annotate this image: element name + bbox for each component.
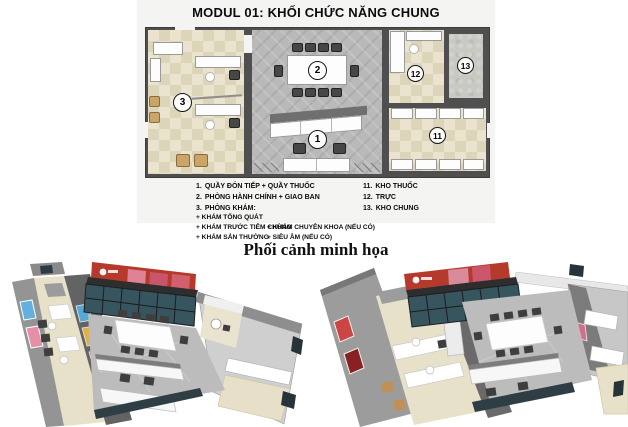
storage-cabinet [415,159,437,170]
meeting-chair [292,88,303,97]
page-title: MODUL 01: KHỐI CHỨC NĂNG CHUNG [137,5,495,20]
room-divider [192,94,242,99]
room-label-12: 12 [407,65,424,82]
room-1-2-floor [252,30,382,174]
storage-cabinet [439,159,461,170]
exam-desk [195,56,241,68]
room-label-3: 3 [173,93,192,112]
waiting-chair [149,112,160,123]
meeting-chair [318,88,329,97]
room-label-2: 2 [308,61,327,80]
room-label-1: 1 [308,130,327,149]
meeting-chair [305,88,316,97]
storage-cabinet [439,108,461,119]
waiting-chair [176,154,190,167]
legend-subitem: + KHÁM TỔNG QUÁT [196,214,375,221]
reception-chair [293,143,306,154]
legend-left-column: 1.QUẦY ĐÓN TIẾP + QUẦY THUỐC 2.PHÒNG HÀN… [196,183,375,244]
pharmacy-counter [283,158,350,172]
meeting-chair [331,88,342,97]
legend-item: 13.KHO CHUNG [363,205,419,212]
legend-item: 1.QUẦY ĐÓN TIẾP + QUẦY THUỐC [196,183,375,190]
office-chair [229,70,240,80]
perspective-render-left [0,262,305,427]
legend-item: 12.TRỰC [363,194,419,201]
room-3-floor [148,30,244,174]
wardrobe [390,31,405,73]
meeting-chair [305,43,316,52]
meeting-chair [292,43,303,52]
shelf [406,31,442,41]
stool [205,72,215,82]
legend-item: 11.KHO THUỐC [363,183,419,190]
sink [409,44,419,54]
meeting-chair [331,43,342,52]
meeting-chair [318,43,329,52]
perspective-render-right [318,262,628,427]
side-desk [150,58,161,82]
door-gap [175,27,195,30]
storage-cabinet [463,159,484,170]
room-label-13: 13 [457,57,474,74]
waiting-chair [149,96,160,107]
legend-subitem: + KHÁM TRƯỚC TIÊM CHỦNG+ KHÁM CHUYÊN KHO… [196,224,375,231]
door-gap [145,122,148,138]
floor-hatch [354,163,380,172]
storage-cabinet [415,108,437,119]
room-label-11: 11 [429,127,446,144]
storage-cabinet [391,108,413,119]
stool [205,120,215,130]
storage-cabinet [463,108,484,119]
legend-item: 2.PHÒNG HÀNH CHÍNH + GIAO BAN [196,194,375,201]
floor-plan: 1 2 3 11 12 13 [145,27,490,178]
meeting-chair [350,65,359,77]
storage-cabinet [391,159,413,170]
cabinet [153,42,183,55]
meeting-chair [274,65,283,77]
reception-chair [333,143,346,154]
exam-desk [195,104,241,116]
office-chair [229,118,240,128]
legend-item: 3.PHÒNG KHÁM: [196,205,375,212]
legend-right-column: 11.KHO THUỐC 12.TRỰC 13.KHO CHUNG [363,183,419,216]
waiting-chair [194,154,208,167]
door-gap [244,35,252,53]
perspective-caption: Phối cảnh minh họa [137,240,495,260]
floor-hatch [254,163,279,172]
door-gap [487,123,490,138]
